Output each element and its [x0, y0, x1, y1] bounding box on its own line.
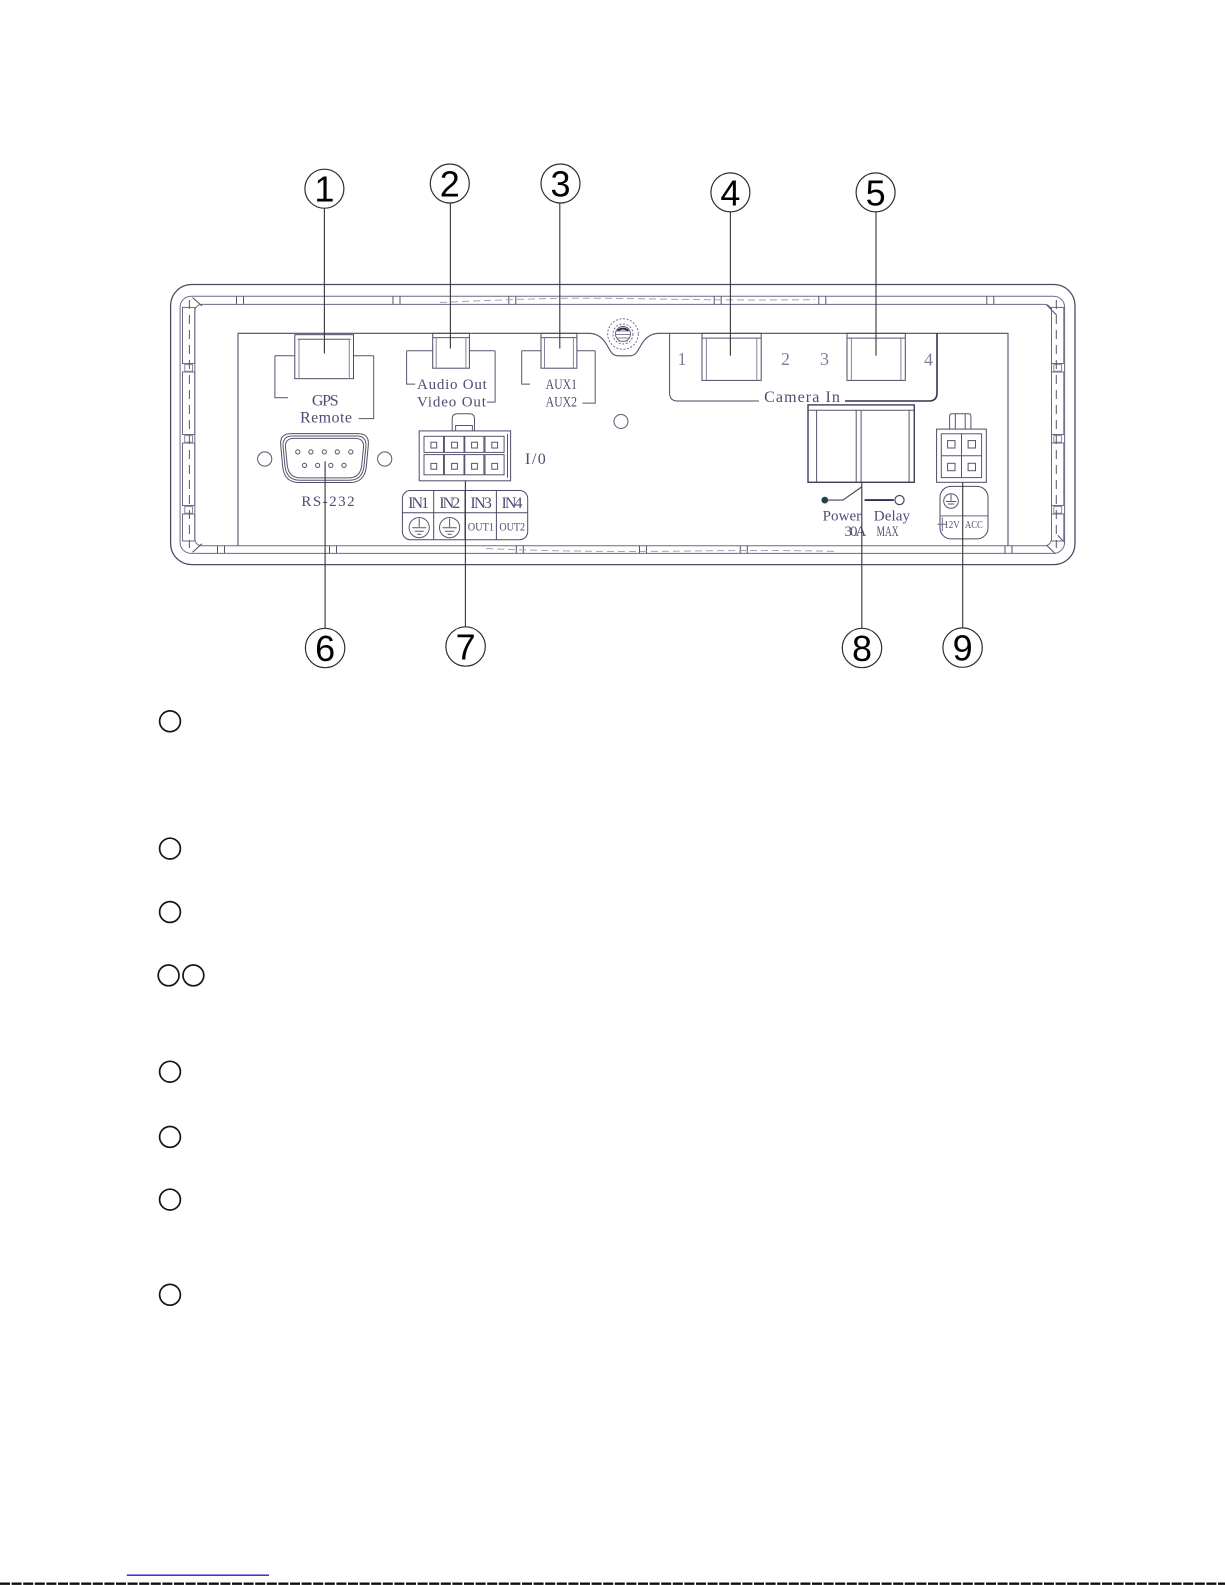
svg-text:Power: Power [823, 508, 862, 524]
svg-text:30A: 30A [845, 524, 867, 540]
svg-text:AUX1: AUX1 [546, 377, 577, 393]
svg-text:IN2: IN2 [439, 495, 460, 512]
svg-text:2: 2 [781, 349, 790, 369]
svg-text:IN3: IN3 [470, 495, 492, 512]
svg-text:5: 5 [866, 172, 886, 213]
svg-text:2: 2 [440, 164, 460, 205]
svg-text:1: 1 [678, 349, 687, 369]
svg-text:8: 8 [852, 628, 872, 669]
svg-text:MAX: MAX [877, 524, 899, 540]
svg-text:IN1: IN1 [408, 495, 429, 512]
svg-text:1: 1 [314, 169, 334, 210]
svg-text:RS-232: RS-232 [301, 494, 354, 510]
svg-text:OUT1: OUT1 [468, 520, 494, 534]
svg-text:Audio Out: Audio Out [417, 377, 488, 393]
svg-text:3: 3 [550, 164, 570, 205]
svg-text:IN4: IN4 [502, 495, 523, 512]
svg-text:I/0: I/0 [525, 451, 546, 468]
svg-text:6: 6 [315, 628, 335, 669]
svg-text:GPS: GPS [312, 392, 339, 409]
svg-text:12V: 12V [944, 519, 959, 531]
svg-text:7: 7 [456, 627, 476, 668]
svg-text:ACC: ACC [965, 519, 983, 531]
svg-text:3: 3 [820, 349, 829, 369]
svg-text:Camera In: Camera In [764, 389, 840, 406]
svg-text:Remote: Remote [300, 410, 352, 427]
svg-text:OUT2: OUT2 [499, 520, 525, 534]
svg-text:AUX2: AUX2 [546, 394, 577, 410]
svg-text:Delay: Delay [874, 508, 911, 524]
svg-text:Video Out: Video Out [417, 394, 487, 410]
svg-text:4: 4 [924, 350, 933, 370]
svg-text:4: 4 [720, 172, 740, 213]
svg-text:9: 9 [953, 628, 973, 669]
